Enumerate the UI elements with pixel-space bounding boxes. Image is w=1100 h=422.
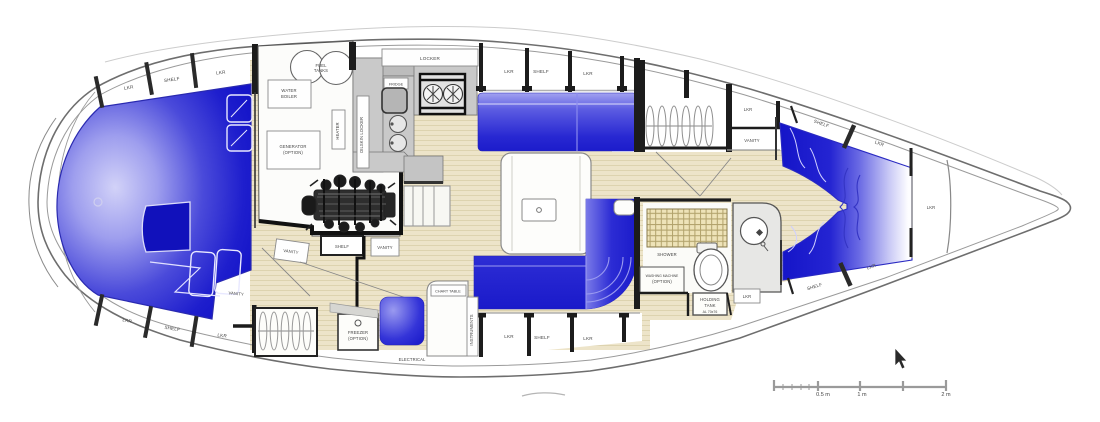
svg-text:TANK: TANK (704, 303, 715, 308)
svg-text:1 m: 1 m (857, 392, 867, 398)
svg-text:SHOWER: SHOWER (657, 252, 676, 257)
svg-text:LKR: LKR (743, 294, 751, 299)
svg-text:LKR: LKR (583, 71, 593, 76)
svg-text:(OPTION): (OPTION) (283, 150, 303, 155)
svg-text:GENERATOR: GENERATOR (279, 144, 306, 149)
svg-text:WASHING MACHINE: WASHING MACHINE (646, 274, 679, 278)
svg-text:CHART TABLE: CHART TABLE (435, 290, 461, 294)
svg-text:0.5 m: 0.5 m (816, 392, 830, 398)
svg-text:SHELF: SHELF (335, 244, 349, 249)
svg-text:SHELF: SHELF (533, 69, 549, 74)
svg-text:LKR: LKR (504, 69, 514, 74)
svg-text:TANKS: TANKS (314, 68, 328, 73)
svg-text:LKR: LKR (216, 69, 226, 75)
svg-text:INSTRUMENTS: INSTRUMENTS (469, 314, 474, 345)
svg-text:LKR: LKR (583, 336, 593, 341)
svg-text:FREEZER: FREEZER (348, 330, 368, 335)
svg-text:LOCKER: LOCKER (420, 56, 441, 61)
svg-text:FRIDGE: FRIDGE (389, 83, 404, 87)
svg-text:VANITY: VANITY (377, 245, 393, 250)
svg-text:ELECTRICAL: ELECTRICAL (399, 357, 426, 362)
svg-text:2 m: 2 m (941, 392, 951, 398)
svg-text:HOLDING: HOLDING (700, 297, 720, 302)
svg-text:LKR: LKR (504, 334, 514, 339)
svg-text:HEATER: HEATER (335, 122, 340, 139)
svg-text:AL 70x76: AL 70x76 (703, 310, 718, 314)
svg-text:WATER: WATER (281, 88, 296, 93)
svg-text:(OPTION): (OPTION) (652, 279, 672, 284)
svg-text:VANITY: VANITY (744, 138, 760, 143)
svg-text:(OPTION): (OPTION) (348, 336, 368, 341)
svg-text:LKR: LKR (927, 205, 935, 210)
svg-text:OILSKIN LOCKER: OILSKIN LOCKER (359, 117, 364, 153)
svg-text:BOILER: BOILER (281, 94, 297, 99)
svg-text:LKR: LKR (744, 107, 752, 112)
svg-text:SHELF: SHELF (534, 335, 550, 340)
